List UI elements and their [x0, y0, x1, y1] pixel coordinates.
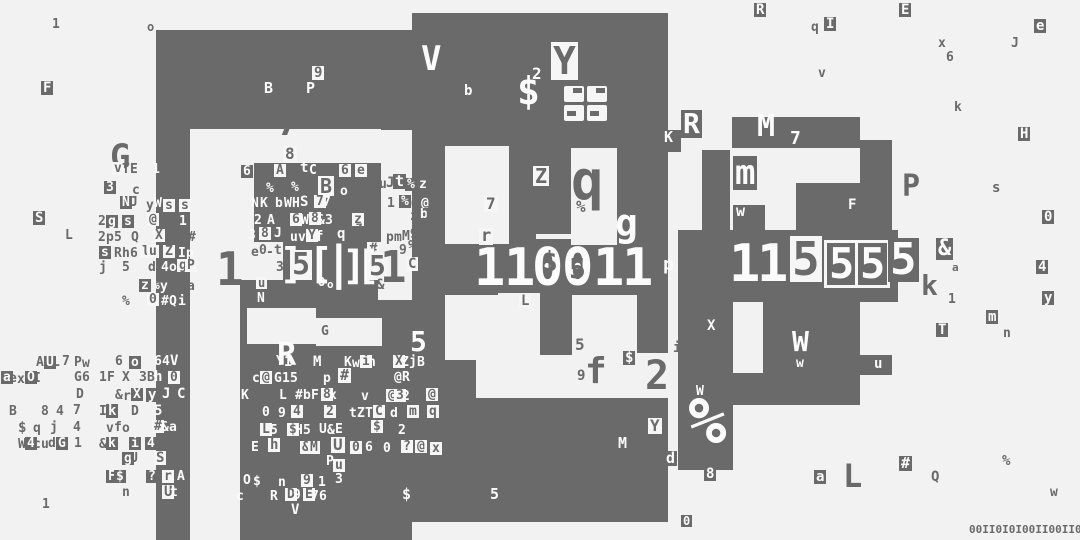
- noise-glyph: j: [409, 355, 417, 368]
- noise-glyph: M: [618, 436, 627, 451]
- noise-glyph: Q: [169, 295, 177, 308]
- noise-glyph: V: [291, 503, 299, 517]
- noise-glyph: S: [300, 195, 308, 209]
- noise-glyph: e: [251, 246, 259, 259]
- noise-glyph: 7: [323, 196, 331, 209]
- noise-glyph: 5: [114, 231, 122, 244]
- noise-glyph: $: [541, 248, 558, 276]
- noise-glyph: 7: [484, 196, 498, 212]
- noise-glyph: 3: [248, 229, 256, 242]
- noise-glyph: w: [796, 357, 804, 370]
- noise-glyph: C: [373, 405, 385, 418]
- noise-glyph: 2: [398, 424, 406, 437]
- noise-glyph: 6: [154, 355, 162, 368]
- noise-glyph: k: [954, 101, 962, 114]
- noise-glyph: m: [733, 156, 757, 190]
- windowpane-glyph: [564, 86, 610, 124]
- noise-glyph: t: [170, 486, 178, 499]
- noise-glyph: n: [1003, 327, 1011, 340]
- noise-glyph: o: [327, 279, 334, 290]
- noise-glyph: #: [188, 231, 196, 244]
- noise-glyph: w: [82, 357, 90, 370]
- noise-glyph: Z: [533, 166, 549, 186]
- noise-glyph: a: [169, 421, 177, 434]
- noise-glyph: J: [130, 196, 138, 209]
- noise-glyph: O: [243, 474, 251, 487]
- noise-glyph: 5: [575, 337, 585, 353]
- noise-glyph: 1: [504, 242, 535, 294]
- noise-glyph: c: [33, 438, 41, 451]
- noise-glyph: F: [311, 389, 319, 402]
- noise-glyph: x: [17, 373, 25, 386]
- noise-glyph: o: [340, 185, 348, 198]
- noise-glyph: F: [848, 198, 856, 212]
- noise-glyph: %: [152, 279, 160, 292]
- noise-glyph: 0: [1042, 210, 1054, 224]
- noise-glyph: o: [122, 422, 130, 435]
- noise-glyph: A: [177, 470, 185, 483]
- noise-glyph: 1: [474, 242, 505, 294]
- noise-glyph: w: [736, 204, 745, 219]
- noise-glyph: P: [74, 356, 82, 369]
- noise-glyph: 7: [425, 242, 433, 256]
- noise-glyph: c: [252, 372, 260, 385]
- noise-glyph: I: [824, 17, 836, 31]
- noise-glyph: 1: [152, 163, 160, 176]
- noise-glyph: t: [300, 161, 308, 175]
- noise-glyph: x: [329, 389, 337, 402]
- noise-glyph: %: [122, 295, 130, 308]
- noise-glyph: k: [106, 437, 118, 450]
- noise-glyph: q: [33, 422, 41, 435]
- noise-glyph: 7: [73, 404, 81, 417]
- noise-glyph: 1: [948, 293, 956, 306]
- noise-glyph: 0: [383, 442, 391, 455]
- noise-glyph: 5: [270, 424, 278, 437]
- noise-glyph: C: [406, 257, 418, 271]
- noise-glyph: %: [399, 195, 411, 208]
- noise-glyph: T: [122, 163, 130, 176]
- noise-glyph: 5: [855, 240, 890, 288]
- noise-glyph: 2: [645, 356, 669, 396]
- noise-glyph: 5: [290, 372, 298, 385]
- noise-glyph: %: [291, 181, 299, 194]
- noise-glyph: e: [9, 372, 17, 385]
- noise-glyph: 3: [139, 371, 147, 384]
- noise-glyph: %: [408, 239, 418, 256]
- block: [702, 150, 730, 230]
- noise-glyph: K: [260, 197, 268, 210]
- noise-glyph: 1: [179, 215, 187, 228]
- noise-glyph: R: [754, 3, 766, 17]
- noise-glyph: J: [162, 387, 170, 401]
- noise-glyph: R: [402, 371, 410, 384]
- noise-glyph: 6: [130, 247, 138, 260]
- noise-glyph: 3: [335, 473, 343, 486]
- noise-glyph: 0: [147, 293, 159, 306]
- noise-glyph: h: [268, 438, 280, 452]
- noise-glyph: #: [338, 368, 351, 383]
- noise-glyph: P: [902, 172, 920, 202]
- noise-glyph: S: [33, 211, 45, 225]
- noise-glyph: h: [122, 247, 130, 260]
- noise-glyph: b: [303, 389, 311, 402]
- noise-glyph: 7: [62, 355, 70, 368]
- noise-glyph: 9: [312, 66, 324, 80]
- noise-glyph: 1: [216, 246, 244, 292]
- noise-glyph: 4: [145, 437, 157, 450]
- noise-glyph: J: [1011, 37, 1019, 50]
- noise-glyph: 0: [350, 441, 362, 454]
- noise-glyph: B: [9, 405, 17, 418]
- noise-glyph: @: [147, 213, 159, 226]
- noise-glyph: &: [376, 278, 384, 292]
- noise-glyph: X: [122, 371, 130, 384]
- noise-glyph: $: [18, 421, 26, 435]
- noise-glyph: ?: [146, 470, 158, 483]
- noise-glyph: U: [130, 452, 138, 465]
- noise-glyph: %: [576, 199, 586, 215]
- noise-glyph: 3: [325, 214, 333, 227]
- noise-glyph: 4: [161, 261, 169, 274]
- noise-glyph: Q: [931, 470, 939, 484]
- noise-glyph: j: [99, 261, 107, 274]
- noise-glyph: f: [114, 421, 122, 434]
- noise-glyph: L: [52, 356, 60, 369]
- noise-glyph: D: [76, 388, 84, 401]
- noise-glyph: W: [284, 197, 292, 210]
- noise-glyph: %: [405, 178, 417, 191]
- noise-glyph: 6: [82, 371, 90, 384]
- windowpane-slot: [590, 111, 599, 116]
- noise-glyph: H: [292, 197, 300, 210]
- noise-glyph: e: [1034, 19, 1046, 33]
- noise-glyph: G: [56, 437, 68, 450]
- noise-glyph: m: [986, 310, 998, 324]
- noise-glyph: g: [615, 204, 638, 242]
- noise-glyph: B: [426, 210, 434, 223]
- noise-glyph: 0: [168, 371, 180, 384]
- noise-glyph: L: [843, 460, 862, 492]
- noise-glyph: 4: [162, 355, 170, 368]
- noise-glyph: u: [874, 357, 882, 371]
- noise-glyph: $: [402, 487, 411, 502]
- noise-glyph: Z: [357, 407, 365, 420]
- noise-glyph: 1: [387, 197, 395, 210]
- noise-glyph: 7: [790, 130, 801, 148]
- noise-glyph: s: [163, 199, 175, 212]
- noise-glyph: v: [361, 390, 369, 403]
- noise-glyph: Y: [551, 42, 578, 80]
- noise-glyph: 2: [98, 215, 106, 228]
- barcode: 00II0I0I00II00II00II0000: [969, 524, 1080, 535]
- noise-glyph: 1: [593, 242, 624, 294]
- noise-glyph: 2: [402, 390, 410, 403]
- noise-glyph: z: [410, 210, 418, 223]
- noise-glyph: c: [236, 490, 244, 503]
- noise-glyph: R: [270, 490, 278, 503]
- noise-glyph: -: [266, 246, 274, 259]
- noise-glyph: s: [992, 181, 1000, 195]
- noise-glyph: 8: [283, 146, 297, 162]
- noise-glyph: U: [319, 423, 327, 436]
- noise-glyph: 5: [824, 240, 859, 288]
- noise-glyph: a: [952, 262, 959, 273]
- noise-glyph: S: [154, 451, 166, 465]
- noise-glyph: Z: [401, 356, 409, 369]
- noise-glyph: U: [331, 437, 345, 453]
- windowpane-slot: [573, 88, 582, 93]
- block: [720, 373, 860, 405]
- noise-glyph: K: [241, 389, 249, 402]
- noise-glyph: Z: [163, 245, 175, 258]
- windowpane-slot: [596, 88, 605, 93]
- noise-glyph: d: [148, 261, 156, 274]
- noise-glyph: q: [427, 405, 439, 418]
- noise-glyph: E: [899, 3, 911, 17]
- noise-glyph: $: [623, 351, 635, 365]
- noise-glyph: 5: [410, 328, 427, 356]
- noise-glyph: z: [417, 178, 429, 191]
- noise-glyph: 6: [365, 441, 373, 454]
- noise-glyph: 6: [946, 51, 954, 64]
- noise-glyph: 1: [757, 238, 788, 290]
- noise-glyph: Q: [131, 231, 139, 244]
- noise-glyph: M: [308, 441, 320, 454]
- noise-glyph: X: [153, 229, 165, 242]
- noise-glyph: C: [177, 387, 185, 401]
- noise-glyph: p: [663, 256, 674, 274]
- noise-glyph: 8: [41, 405, 49, 418]
- noise-glyph: k: [921, 272, 938, 300]
- noise-glyph: I: [33, 372, 41, 385]
- noise-glyph: W: [154, 197, 162, 210]
- noise-glyph: 9: [301, 474, 313, 487]
- noise-glyph: $: [114, 470, 126, 483]
- noise-glyph: N: [257, 292, 265, 305]
- noise-glyph: 9: [278, 407, 286, 420]
- noise-glyph: 1: [729, 238, 760, 290]
- noise-glyph: v: [106, 422, 114, 435]
- noise-glyph: R: [114, 247, 122, 260]
- noise-glyph: T: [936, 323, 948, 337]
- noise-glyph: 1: [99, 371, 107, 384]
- noise-glyph: y: [160, 280, 168, 293]
- noise-glyph: 6: [241, 165, 253, 178]
- noise-glyph: F: [41, 81, 53, 95]
- noise-glyph: 8: [259, 227, 271, 240]
- noise-glyph: p: [323, 372, 331, 385]
- noise-glyph: 3: [104, 181, 116, 194]
- noise-glyph: x: [430, 442, 442, 455]
- noise-glyph: $: [371, 420, 383, 433]
- noise-glyph: p: [680, 341, 692, 361]
- noise-glyph: y: [1042, 291, 1054, 305]
- noise-glyph: A: [274, 164, 286, 177]
- noise-glyph: %: [266, 182, 274, 195]
- noise-glyph: G: [274, 372, 282, 385]
- noise-glyph: B: [264, 81, 273, 96]
- noise-glyph: B: [417, 356, 425, 369]
- noise-glyph: t: [349, 407, 357, 420]
- noise-glyph: 5: [122, 261, 130, 274]
- noise-glyph: w: [352, 357, 360, 370]
- noise-glyph: W: [792, 328, 809, 356]
- noise-glyph: 1: [622, 242, 653, 294]
- noise-glyph: r: [162, 470, 174, 483]
- noise-glyph: V: [421, 42, 441, 76]
- noise-glyph: 2: [324, 405, 336, 418]
- noise-glyph: s: [179, 199, 191, 212]
- noise-glyph: X: [705, 319, 717, 333]
- noise-glyph: d: [48, 437, 56, 450]
- noise-glyph: 4: [1036, 260, 1048, 274]
- noise-glyph: k: [106, 404, 118, 418]
- noise-glyph: o: [169, 261, 177, 274]
- noise-glyph: d: [390, 407, 398, 420]
- noise-glyph: 5: [888, 238, 919, 282]
- noise-glyph: G: [74, 371, 82, 384]
- noise-glyph: o: [147, 21, 154, 33]
- noise-glyph: u: [256, 277, 267, 289]
- noise-glyph: %: [1002, 454, 1010, 468]
- noise-glyph: p: [106, 231, 114, 244]
- noise-glyph: y: [146, 388, 158, 402]
- noise-glyph: #: [178, 135, 186, 149]
- noise-glyph: 2: [98, 231, 106, 244]
- noise-glyph: 6: [115, 355, 123, 368]
- windowpane-cell: [564, 105, 584, 121]
- noise-glyph: m: [407, 405, 419, 418]
- noise-glyph: 1: [282, 372, 290, 385]
- noise-glyph: M: [757, 112, 775, 142]
- noise-glyph: $: [253, 475, 261, 488]
- noise-glyph: @: [426, 388, 438, 401]
- noise-glyph: V: [170, 354, 178, 368]
- noise-glyph: x: [938, 37, 946, 50]
- noise-glyph: d: [664, 451, 677, 466]
- noise-glyph: L: [65, 229, 73, 242]
- noise-glyph: #: [161, 295, 169, 308]
- noise-glyph: E: [130, 163, 138, 176]
- noise-glyph: 7: [311, 490, 319, 503]
- noise-glyph: 5: [569, 255, 586, 283]
- noise-glyph: E: [251, 441, 259, 454]
- noise-glyph: #: [295, 389, 303, 402]
- noise-glyph: %: [688, 390, 727, 454]
- noise-glyph: @: [260, 371, 272, 384]
- noise-glyph: 6: [319, 490, 327, 503]
- noise-glyph: o: [129, 356, 141, 369]
- noise-glyph: u: [333, 459, 345, 472]
- noise-glyph: K: [664, 130, 673, 145]
- noise-glyph: 0: [262, 406, 270, 419]
- noise-glyph: #: [899, 456, 912, 471]
- noise-glyph: A: [36, 356, 44, 369]
- noise-glyph: a: [187, 280, 195, 293]
- noise-glyph: 1: [318, 476, 326, 489]
- windowpane-cell: [587, 105, 607, 121]
- noise-glyph: 4: [73, 421, 81, 434]
- noise-glyph: C: [309, 164, 317, 177]
- noise-glyph: B: [318, 176, 334, 196]
- noise-glyph: Y: [276, 355, 284, 368]
- noise-glyph: u: [147, 245, 159, 258]
- noise-glyph: 9: [293, 489, 301, 502]
- windowpane-slot: [567, 111, 576, 116]
- noise-glyph: e: [355, 164, 367, 177]
- noise-glyph: @: [394, 371, 402, 384]
- noise-glyph: 1: [74, 437, 82, 450]
- noise-glyph: v: [818, 67, 826, 80]
- noise-glyph: 0: [681, 515, 692, 527]
- noise-glyph: 1: [284, 356, 292, 369]
- block: [445, 146, 509, 244]
- noise-glyph: T: [365, 407, 373, 420]
- noise-glyph: W: [301, 214, 309, 227]
- noise-glyph: R: [681, 110, 702, 138]
- noise-glyph: L: [279, 389, 287, 402]
- noise-glyph: @: [415, 440, 427, 453]
- noise-glyph: H: [295, 424, 303, 437]
- noise-glyph: s: [99, 246, 111, 259]
- noise-glyph: 5: [154, 404, 162, 418]
- noise-glyph: 4: [56, 405, 64, 418]
- noise-glyph: 5: [303, 424, 311, 437]
- noise-glyph: &: [317, 214, 325, 227]
- noise-glyph: 2: [532, 66, 542, 82]
- noise-glyph: L: [519, 294, 531, 308]
- noise-glyph: 5: [790, 236, 822, 282]
- noise-glyph: 5: [490, 487, 499, 502]
- block: [412, 525, 470, 540]
- noise-glyph: &: [161, 421, 169, 434]
- noise-glyph: N: [251, 197, 259, 210]
- noise-glyph: P: [306, 81, 315, 96]
- noise-glyph: h: [154, 370, 162, 384]
- noise-glyph: z: [355, 221, 363, 234]
- noise-glyph: X: [131, 388, 143, 401]
- noise-glyph: 6: [339, 164, 351, 177]
- noise-glyph: j: [50, 421, 58, 434]
- noise-glyph: 7: [277, 106, 299, 142]
- noise-glyph: i: [129, 437, 141, 450]
- noise-glyph: s: [122, 215, 134, 228]
- noise-glyph: w: [1050, 486, 1058, 499]
- noise-glyph: z: [139, 279, 151, 292]
- noise-glyph: n: [368, 356, 376, 369]
- noise-glyph: g: [106, 215, 118, 228]
- noise-glyph: M: [313, 355, 321, 369]
- noise-glyph: G: [321, 325, 329, 338]
- noise-glyph: r: [123, 390, 131, 403]
- noise-glyph: f: [585, 354, 607, 390]
- noise-glyph: 1: [52, 18, 60, 31]
- noise-glyph: 8: [704, 467, 716, 481]
- noise-glyph: ?: [401, 440, 413, 453]
- noise-glyph: Y: [648, 418, 662, 434]
- noise-glyph: a: [814, 470, 826, 484]
- noise-glyph: H: [1018, 127, 1030, 141]
- noise-glyph: P: [185, 259, 197, 272]
- noise-glyph: q: [811, 21, 819, 34]
- block: [796, 183, 890, 230]
- glitch-canvas: 1oFG#vTE13cNJyWssS2gs@1L2p5QX#sRh6luZIpj…: [0, 0, 1080, 540]
- noise-glyph: c: [371, 178, 379, 191]
- noise-glyph: O: [318, 276, 325, 288]
- noise-glyph: y: [146, 199, 154, 212]
- noise-glyph: b: [275, 197, 283, 210]
